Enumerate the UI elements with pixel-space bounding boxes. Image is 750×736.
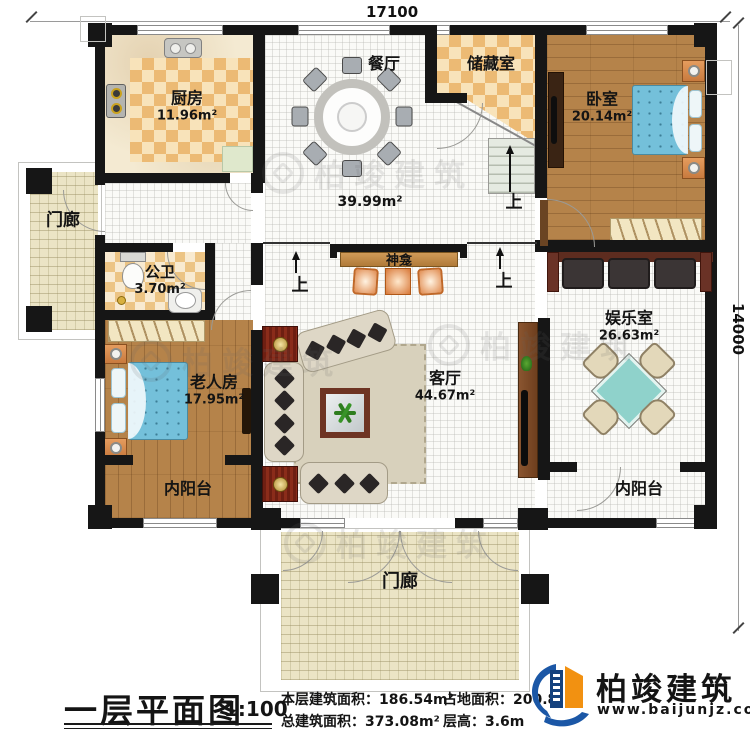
stat-value: 373.08m² [365,714,440,730]
wall [253,35,265,183]
elder-wardrobe [108,320,205,342]
shrine-stool [352,267,379,296]
side-table [262,326,298,362]
wall [455,518,483,528]
window [143,518,217,528]
tv-screen [521,390,528,466]
room-label-entertainment: 娱乐室 26.63m² [599,305,659,344]
bedroom-pillow [689,124,702,152]
window [95,378,105,432]
wall [535,25,547,198]
roofline-outline [706,60,732,95]
bedroom-pillow [689,90,702,118]
stat-label: 本层建筑面积： [281,692,379,708]
room-area: 3.70m² [134,282,185,297]
up-label: 上 [506,188,523,213]
wall [95,235,105,378]
room-name: 老人房 [184,369,244,393]
dining-chair [342,57,362,74]
wall [390,25,425,35]
floor-plan-canvas: 上 上 上 厨房 11.96m² 餐厅 储藏室 卧室 20.14m² 39.99… [0,0,750,736]
stove [106,84,126,118]
bedroom-wardrobe [610,218,702,242]
room-label-dining: 餐厅 [368,50,400,74]
room-label-storage: 储藏室 [467,50,515,74]
room-area: 17.95m² [184,393,244,408]
shrine-wall-cap [330,244,337,258]
room-label-bathroom: 公卫 3.70m² [134,261,185,297]
wall [547,462,577,472]
porch-column [251,574,279,604]
dimension-right-label: 14000 [729,303,747,355]
wall [105,455,133,465]
corner-column [88,505,112,529]
stat-label: 占地面积： [443,692,513,708]
bedroom-desk-monitor [551,96,557,144]
room-name: 公卫 [134,261,185,282]
shrine-label: 神龛 [386,250,412,269]
title-underline [64,728,272,729]
sofa-bottom [300,462,388,504]
sofa-left [264,362,304,462]
porch-column [26,168,52,194]
room-label-porch-bottom: 门廊 [382,567,418,593]
stat-height: 层高：3.6m [443,711,524,731]
stat-label: 层高： [443,714,485,730]
wall [251,243,263,285]
dining-chair [292,107,309,127]
wall [680,462,717,472]
corner-column [694,23,717,47]
elder-pillow [111,368,126,398]
kitchen-sink [164,38,202,58]
bedroom-nightstand [682,157,705,179]
window [300,518,345,528]
brand-website: www.baijunjz.com [597,702,750,718]
wall [225,455,253,465]
wall [425,93,467,103]
kitchen-mat [222,146,253,172]
plan-scale: 1:100 [224,697,288,721]
porch-column [26,306,52,332]
tv-wall-partition [538,318,550,480]
window [298,25,390,35]
dimension-top-label: 17100 [366,3,418,21]
room-label-balcony-right: 内阳台 [615,475,663,499]
dining-chair [396,107,413,127]
ent-sofa-armrest [547,252,559,292]
dimension-line-top [30,21,730,22]
roofline-outline [80,16,106,42]
dining-table-center [337,102,367,132]
window [137,25,223,35]
porch-column [521,574,549,604]
room-name: 卧室 [572,86,632,110]
wall [105,173,230,183]
stat-label: 总建筑面积： [281,714,365,730]
stair-arrow [509,150,511,192]
brand-logo-icon [528,658,590,728]
porch-column [518,508,548,530]
wall [425,25,437,103]
room-label-living: 客厅 44.67m² [415,365,475,404]
stat-floor-area: 本层建筑面积：186.54m² [281,689,454,709]
room-label-elder: 老人房 17.95m² [184,369,244,408]
tv-plant-icon [521,356,532,371]
room-area: 20.14m² [572,110,632,125]
room-area: 44.67m² [415,389,475,404]
room-area: 26.63m² [599,329,659,344]
shrine-stool [385,268,411,295]
ent-sofa-cushion [608,258,650,289]
shrine-stool [417,267,444,296]
corner-column [694,505,717,529]
hall-area-label: 39.99m² [337,194,402,210]
up-label: 上 [292,271,309,296]
elder-nightstand [104,344,127,364]
wall [105,243,173,252]
shrine-wall-cap [460,244,467,258]
room-label-kitchen: 厨房 11.96m² [157,85,217,124]
wall [95,25,105,185]
wall [450,25,586,35]
room-label-porch-left: 门廊 [46,206,80,231]
floor-drain [117,296,126,305]
ent-sofa-armrest [700,252,712,292]
bottom-porch-floor [281,532,519,680]
up-label: 上 [496,267,513,292]
side-table [262,466,298,502]
dining-chair [342,160,362,177]
wall [205,243,215,320]
room-name: 客厅 [415,365,475,389]
room-area: 11.96m² [157,109,217,124]
step-line [263,242,330,244]
stat-total-area: 总建筑面积：373.08m² [281,711,440,731]
window [586,25,668,35]
ent-sofa-cushion [562,258,604,289]
ent-sofa-cushion [654,258,696,289]
window [483,518,518,528]
stat-value: 3.6m [485,714,524,730]
room-label-balcony-left: 内阳台 [164,475,212,499]
plant-icon [334,402,356,424]
wall [223,25,298,35]
room-label-bedroom: 卧室 20.14m² [572,86,632,125]
title-underline [64,723,272,725]
room-name: 厨房 [157,85,217,109]
bedroom-nightstand [682,60,705,82]
room-name: 娱乐室 [599,305,659,329]
elder-pillow [111,403,126,433]
